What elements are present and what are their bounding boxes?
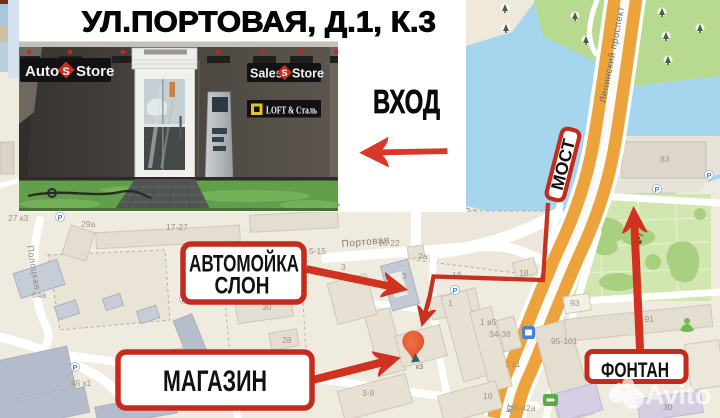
svg-text:Р: Р — [57, 213, 62, 222]
svg-text:1 в5: 1 в5 — [480, 317, 497, 327]
svg-text:1 к1: 1 к1 — [505, 359, 521, 369]
svg-text:Store: Store — [292, 67, 324, 81]
svg-text:Avito: Avito — [645, 380, 712, 410]
svg-text:16-22: 16-22 — [378, 238, 400, 248]
svg-text:Auto: Auto — [25, 63, 59, 80]
svg-text:5-15: 5-15 — [309, 246, 326, 256]
svg-text:3: 3 — [402, 271, 407, 281]
svg-text:к3: к3 — [416, 364, 423, 371]
svg-text:ВХОД: ВХОД — [373, 83, 440, 120]
svg-text:МАГАЗИН: МАГАЗИН — [163, 365, 267, 398]
svg-text:93: 93 — [570, 298, 580, 308]
svg-text:40-42а: 40-42а — [509, 403, 536, 413]
svg-text:64а: 64а — [32, 290, 46, 300]
svg-text:СЛОН: СЛОН — [215, 273, 270, 300]
svg-text:18: 18 — [519, 268, 529, 278]
svg-text:28: 28 — [282, 335, 292, 345]
svg-text:95-101: 95-101 — [551, 336, 578, 346]
svg-text:S: S — [281, 68, 287, 78]
svg-text:3: 3 — [341, 262, 346, 272]
svg-text:34-38: 34-38 — [489, 329, 511, 339]
svg-text:ФОНТАН: ФОНТАН — [601, 359, 669, 382]
svg-text:1: 1 — [448, 298, 453, 308]
svg-text:1б: 1б — [483, 391, 493, 401]
svg-text:LOFT & Сталь: LOFT & Сталь — [266, 106, 318, 117]
svg-text:17-27: 17-27 — [166, 222, 188, 232]
svg-text:27 к3: 27 к3 — [8, 213, 29, 223]
svg-text:Store: Store — [76, 63, 114, 80]
svg-text:Р: Р — [654, 185, 659, 194]
svg-text:3-9: 3-9 — [362, 388, 375, 398]
svg-text:Р: Р — [452, 286, 457, 295]
svg-text:83: 83 — [660, 154, 670, 164]
svg-text:45 к1: 45 к1 — [71, 378, 92, 388]
svg-text:УЛ.ПОРТОВАЯ, Д.1, К.3: УЛ.ПОРТОВАЯ, Д.1, К.3 — [82, 7, 436, 39]
svg-text:S: S — [62, 66, 69, 78]
svg-text:29а: 29а — [81, 219, 95, 229]
svg-text:2а: 2а — [418, 251, 428, 261]
svg-text:Р: Р — [706, 171, 711, 180]
svg-text:Р: Р — [72, 363, 77, 372]
